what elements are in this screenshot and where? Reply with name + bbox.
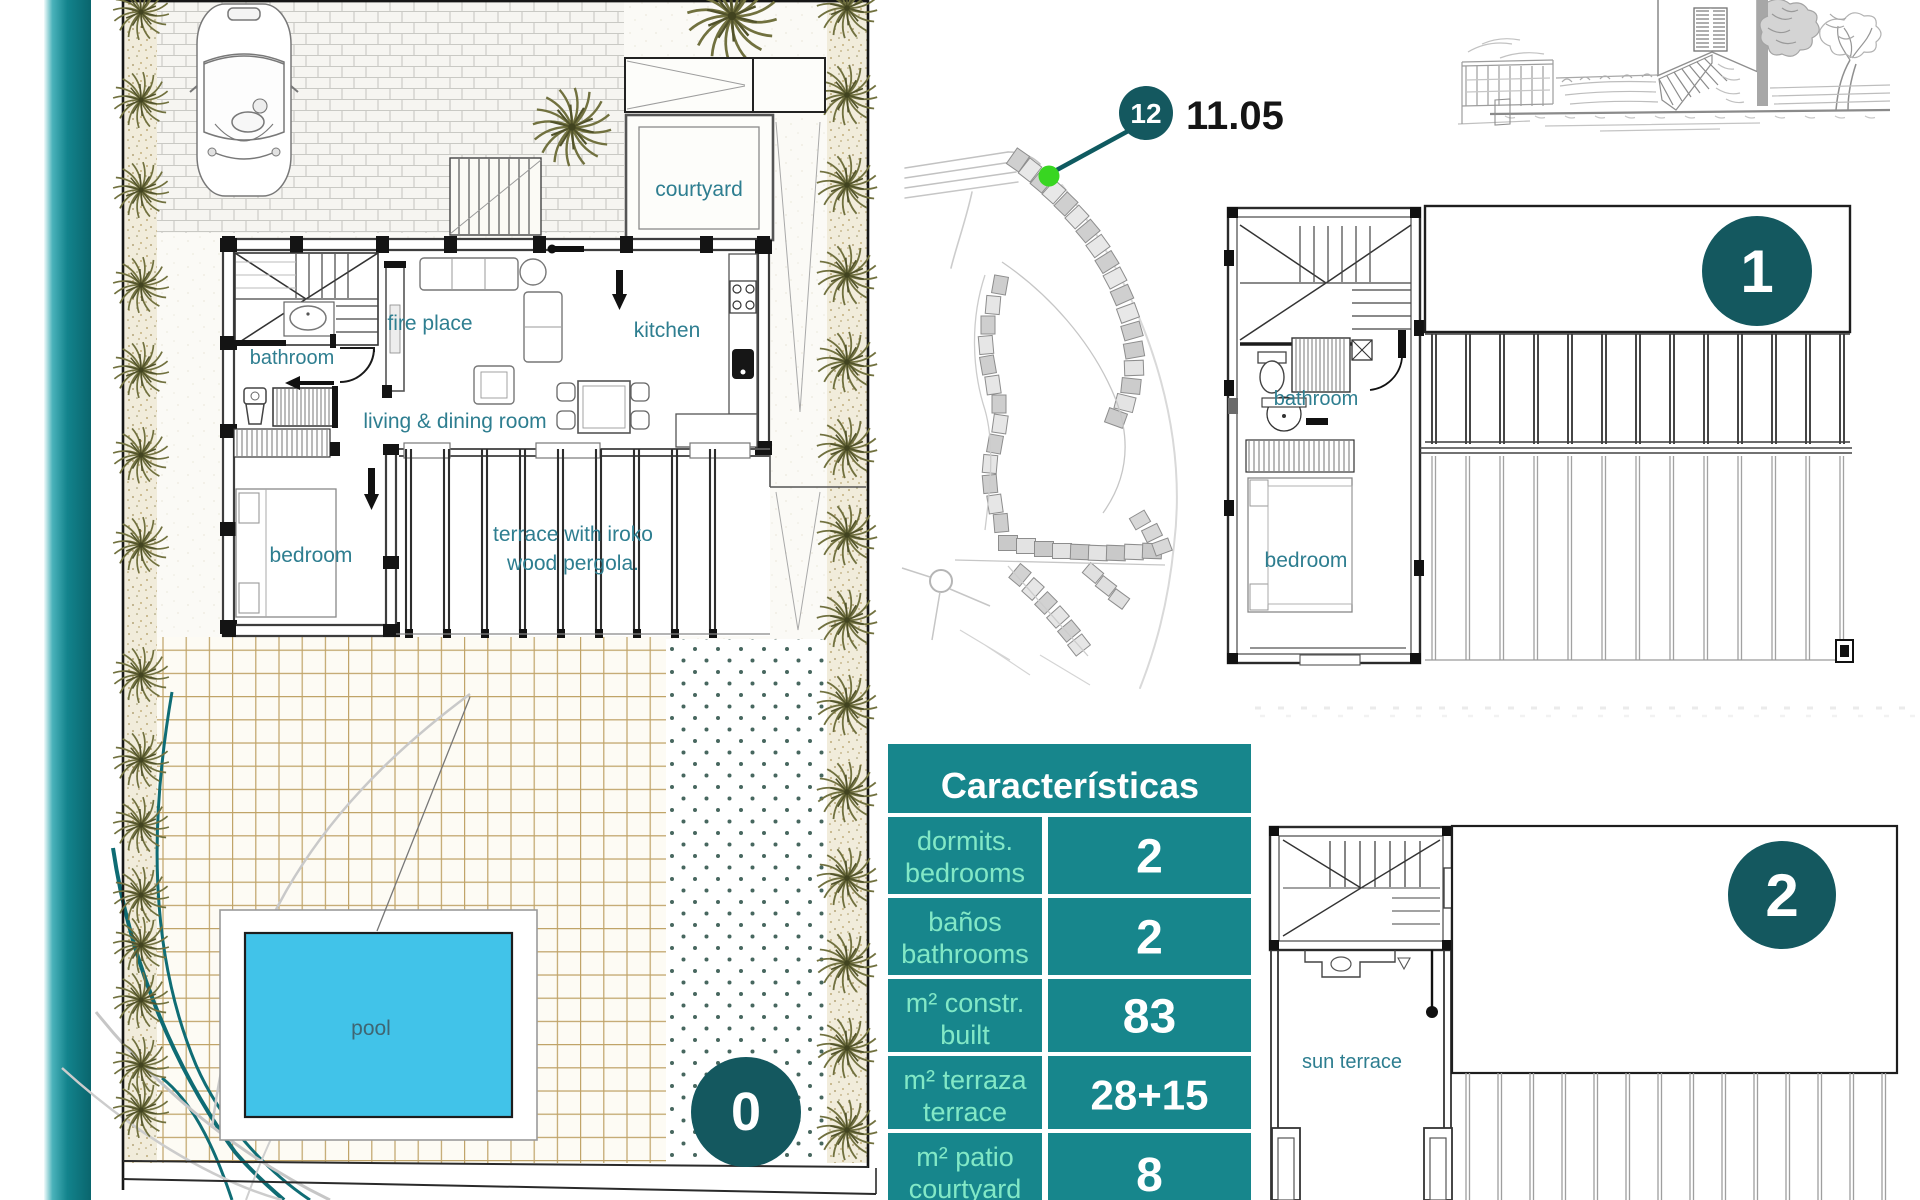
svg-text:12: 12 bbox=[1130, 98, 1161, 129]
svg-text:0: 0 bbox=[731, 1082, 761, 1142]
svg-text:pool: pool bbox=[351, 1017, 391, 1040]
svg-text:11.05: 11.05 bbox=[1186, 94, 1284, 138]
svg-text:1: 1 bbox=[1740, 238, 1773, 305]
svg-text:sun terrace: sun terrace bbox=[1302, 1051, 1402, 1073]
svg-text:courtyard: courtyard bbox=[909, 1174, 1022, 1200]
svg-text:2: 2 bbox=[1136, 831, 1163, 884]
svg-text:m² patio: m² patio bbox=[916, 1142, 1014, 1172]
svg-text:living & dining room: living & dining room bbox=[363, 410, 546, 433]
svg-text:8: 8 bbox=[1136, 1149, 1163, 1200]
svg-text:2: 2 bbox=[1765, 862, 1798, 929]
svg-text:bathroom: bathroom bbox=[250, 347, 335, 369]
svg-text:m² terraza: m² terraza bbox=[903, 1065, 1027, 1095]
svg-text:bedrooms: bedrooms bbox=[905, 858, 1025, 888]
svg-text:fire place: fire place bbox=[387, 312, 472, 335]
svg-text:bathrooms: bathrooms bbox=[901, 939, 1029, 969]
svg-text:83: 83 bbox=[1123, 991, 1176, 1044]
svg-text:28+15: 28+15 bbox=[1091, 1072, 1209, 1119]
svg-text:bedroom: bedroom bbox=[1265, 549, 1348, 572]
svg-text:terrace: terrace bbox=[923, 1097, 1007, 1127]
svg-text:wood pergola.: wood pergola. bbox=[506, 552, 639, 575]
svg-text:2: 2 bbox=[1136, 912, 1163, 965]
svg-text:built: built bbox=[940, 1020, 990, 1050]
svg-text:Características: Características bbox=[941, 765, 1199, 806]
svg-text:terrace with iroko: terrace with iroko bbox=[493, 523, 653, 546]
svg-text:bathroom: bathroom bbox=[1274, 388, 1359, 410]
svg-text:kitchen: kitchen bbox=[634, 319, 701, 342]
svg-text:baños: baños bbox=[928, 907, 1002, 937]
svg-text:bedroom: bedroom bbox=[270, 544, 353, 567]
svg-text:dormits.: dormits. bbox=[917, 826, 1013, 856]
svg-text:courtyard: courtyard bbox=[655, 178, 743, 201]
svg-text:m² constr.: m² constr. bbox=[906, 988, 1025, 1018]
